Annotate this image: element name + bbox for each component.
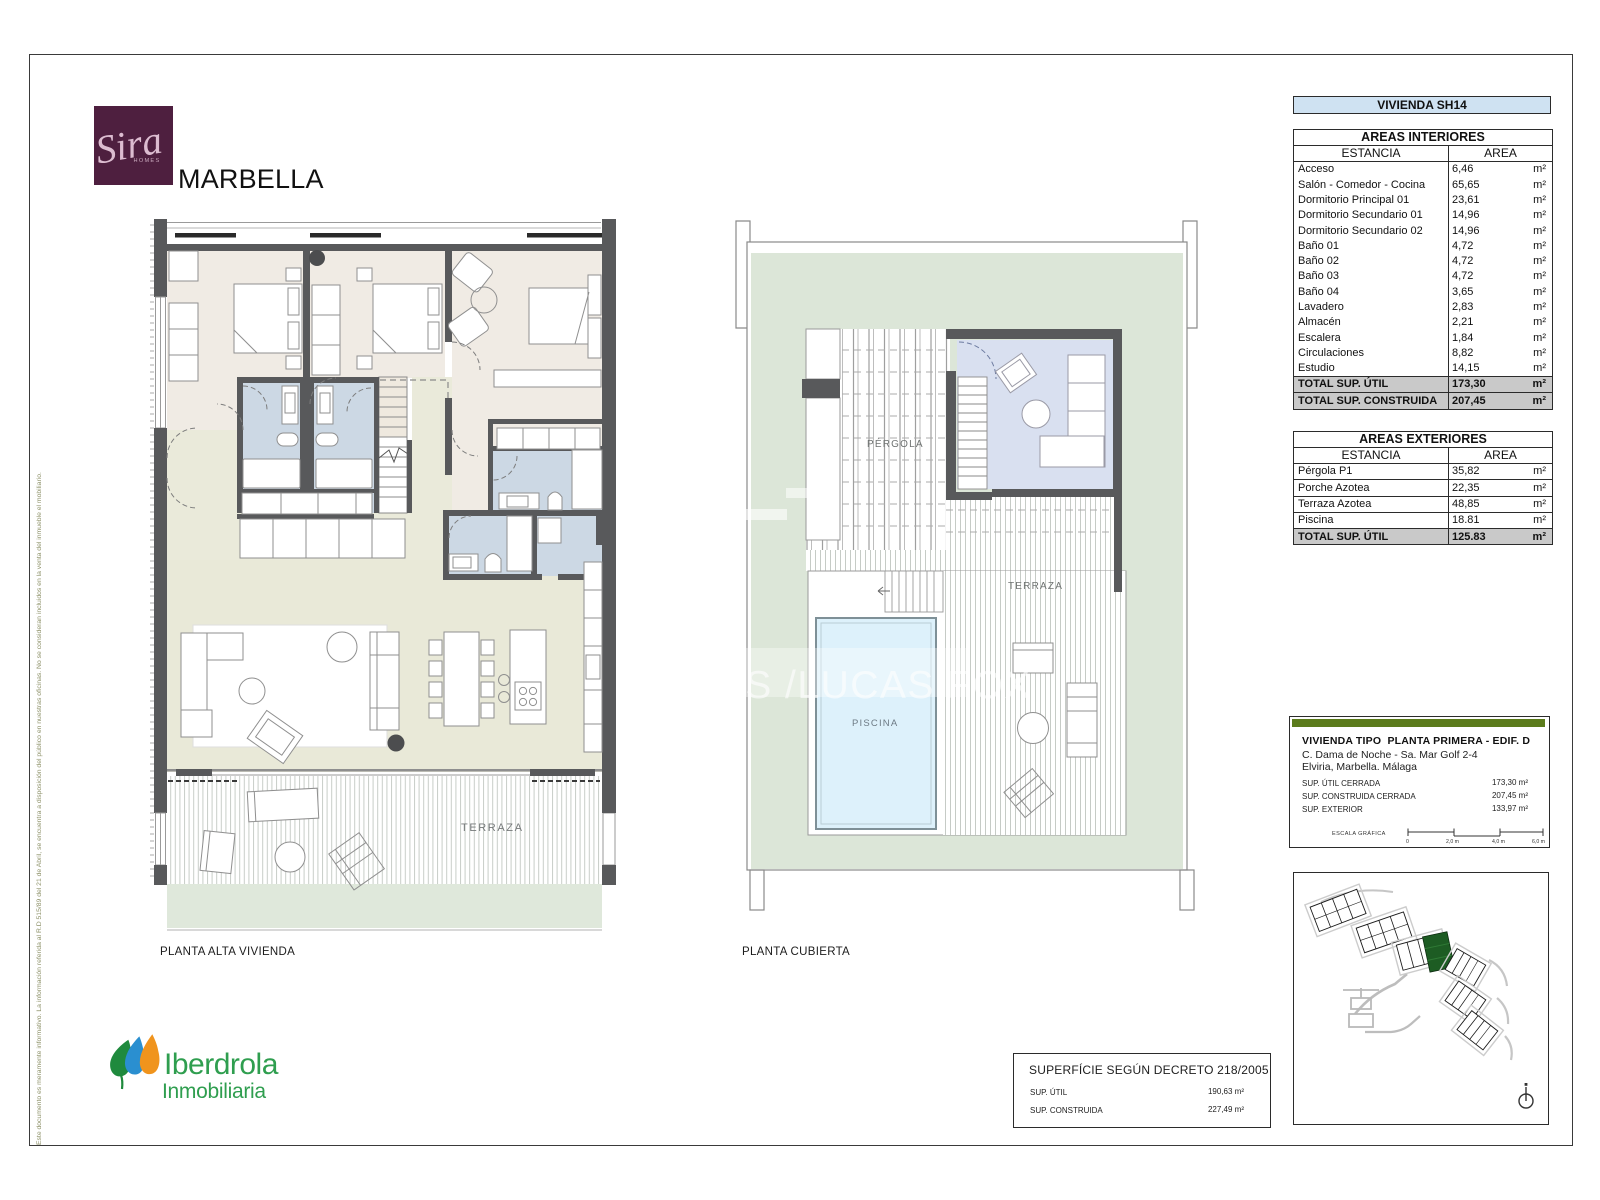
svg-text:TERRAZA: TERRAZA xyxy=(461,822,524,834)
svg-text:0: 0 xyxy=(1406,839,1409,845)
svg-text:HOMES: HOMES xyxy=(133,158,160,164)
svg-text:TERRAZA: TERRAZA xyxy=(1008,581,1063,592)
svg-text:Iberdrola: Iberdrola xyxy=(164,1048,279,1081)
svg-text:6,0 m: 6,0 m xyxy=(1532,839,1545,845)
svg-text:PÉRGOLA: PÉRGOLA xyxy=(867,437,924,450)
svg-text:Inmobiliaria: Inmobiliaria xyxy=(162,1080,266,1102)
svg-text:4,0 m: 4,0 m xyxy=(1492,839,1505,845)
svg-text:ESCALA GRÁFICA: ESCALA GRÁFICA xyxy=(1332,830,1386,837)
svg-text:PISCINA: PISCINA xyxy=(852,718,898,729)
svg-text:2,0 m: 2,0 m xyxy=(1446,839,1459,845)
